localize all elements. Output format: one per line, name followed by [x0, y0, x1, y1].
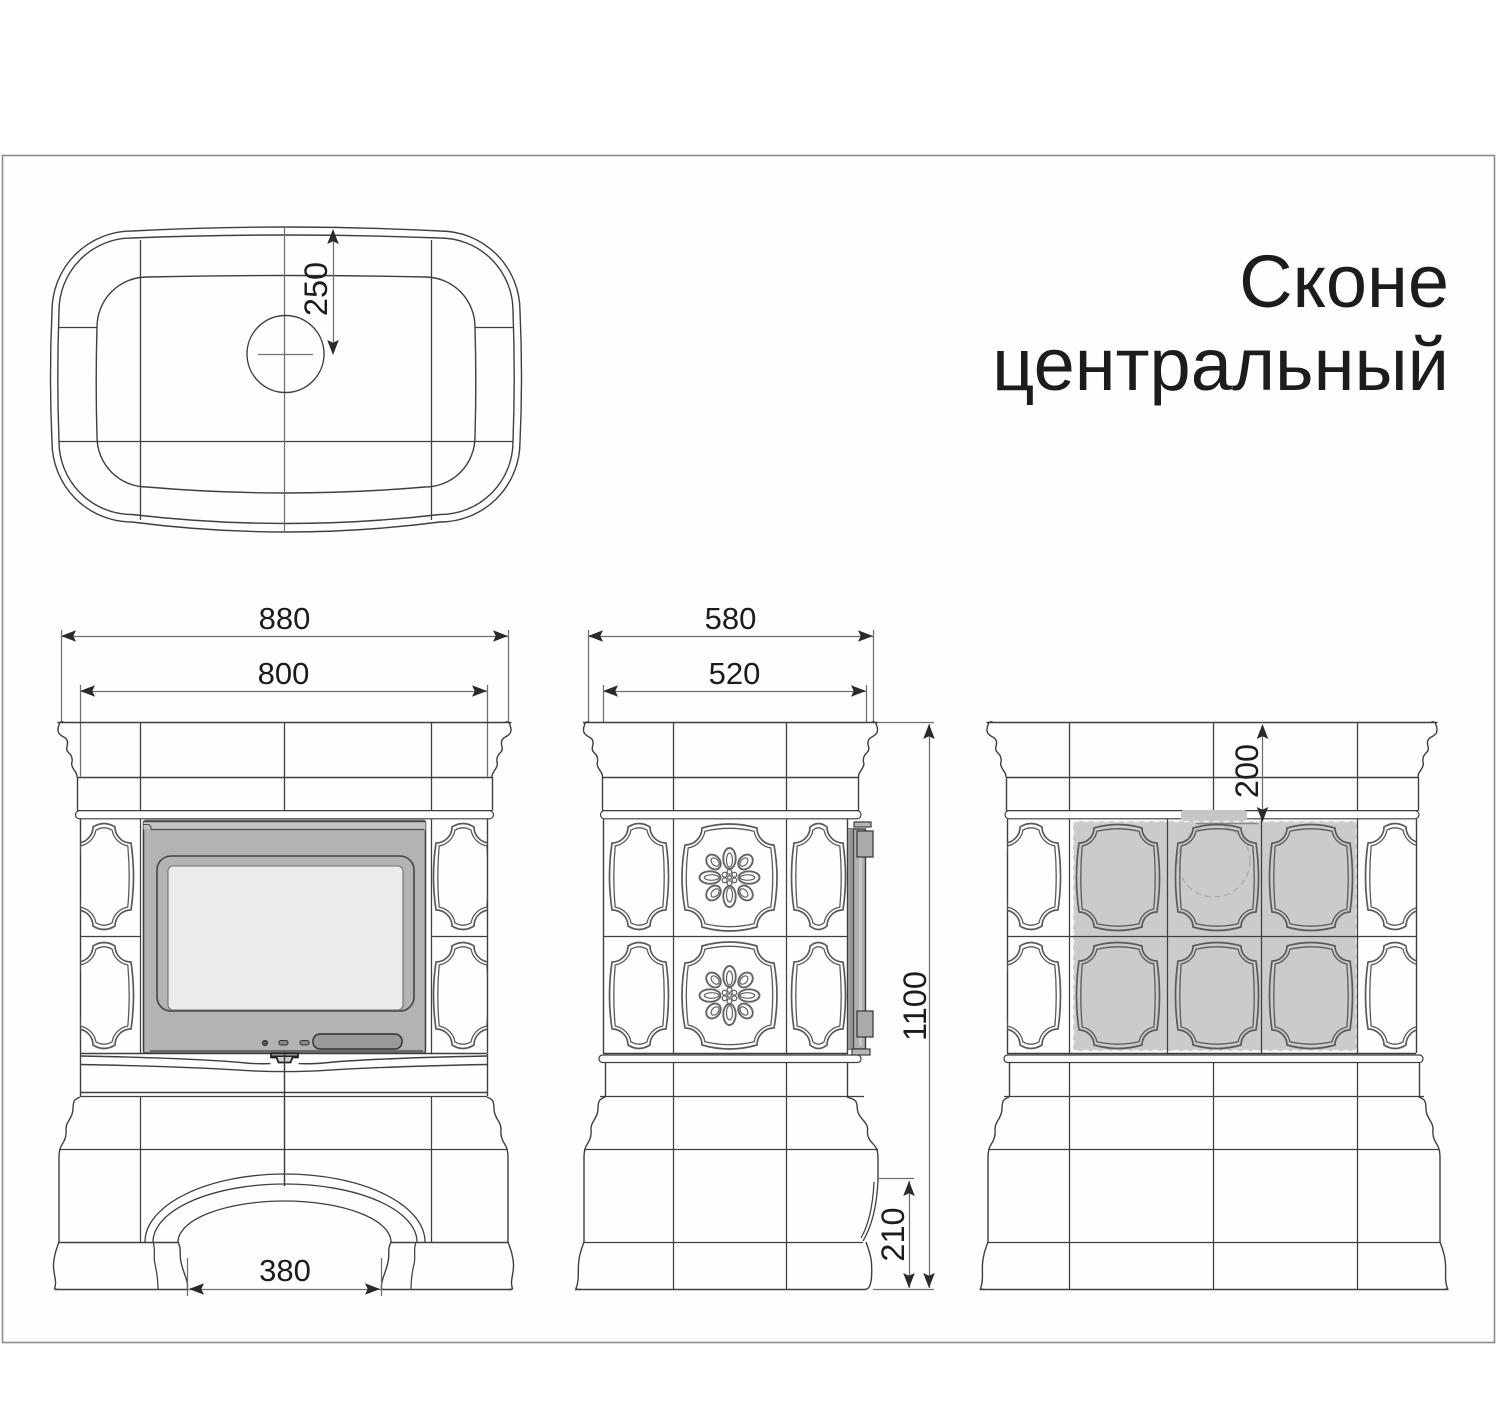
svg-text:250: 250 [298, 262, 334, 316]
svg-text:центральный: центральный [992, 323, 1449, 406]
svg-text:520: 520 [709, 656, 761, 691]
svg-text:200: 200 [1229, 744, 1265, 798]
svg-text:800: 800 [258, 656, 310, 691]
svg-text:210: 210 [875, 1207, 911, 1261]
svg-text:880: 880 [259, 601, 311, 636]
svg-text:1100: 1100 [897, 971, 933, 1041]
svg-text:580: 580 [705, 601, 757, 636]
svg-text:380: 380 [259, 1253, 311, 1288]
svg-text:Сконе: Сконе [1239, 240, 1449, 323]
